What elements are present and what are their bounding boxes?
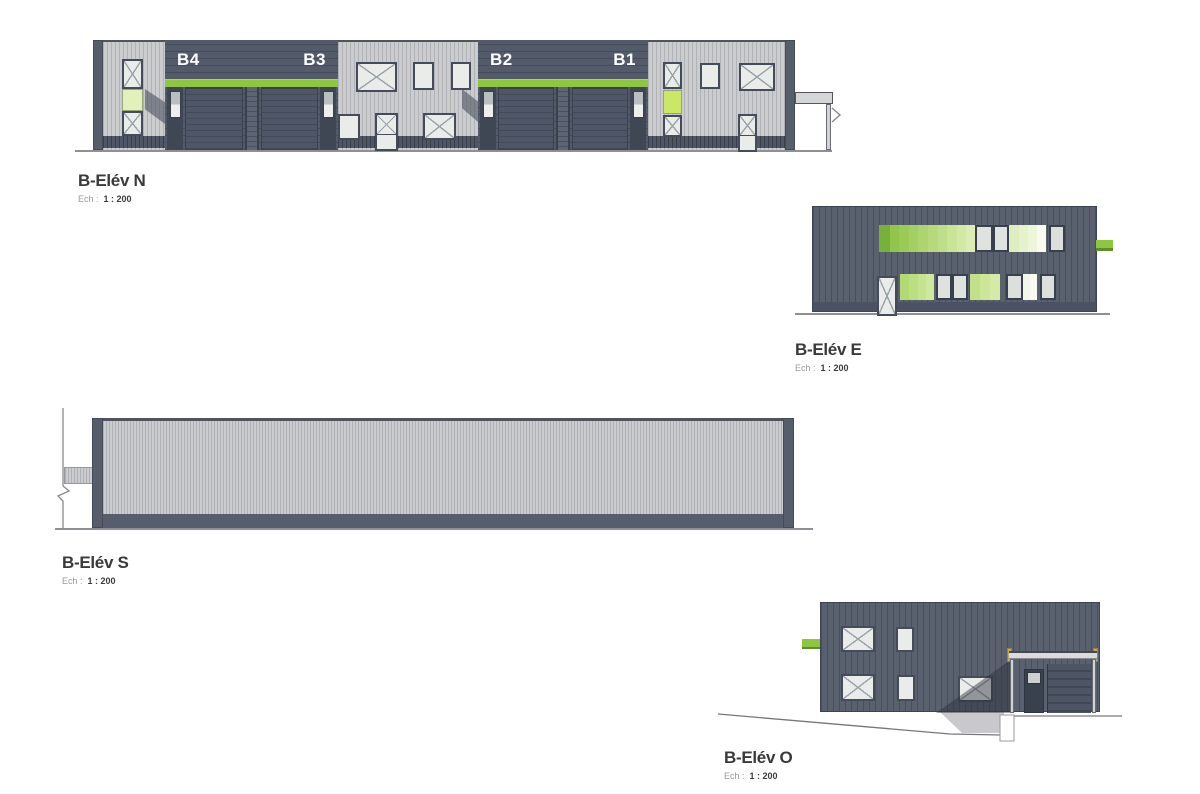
west-scale: Ech :1 : 200 (724, 771, 792, 781)
north-bay-b2-b1: B2 B1 (478, 40, 648, 150)
window-pane (909, 274, 918, 300)
west-title: B-Elév O (724, 748, 792, 768)
east-lower-window-band (900, 274, 1063, 300)
north-bay-b4-b3: B4 B3 (165, 40, 338, 150)
bay-label-b1: B1 (613, 50, 636, 70)
north-base-strip (103, 136, 165, 148)
west-garage-panel (1047, 664, 1091, 713)
south-side-tab (64, 467, 95, 484)
porch-post (1010, 659, 1014, 713)
north-title: B-Elév N (78, 171, 146, 191)
drawing-sheet: B4 B3 B2 (0, 0, 1200, 794)
north-wall-section-left (103, 40, 165, 150)
west-green-tab (802, 639, 820, 649)
window-icon (663, 115, 682, 137)
window-icon (700, 63, 720, 89)
window-icon (896, 627, 914, 652)
break-mark-icon (831, 106, 843, 124)
door-window (1027, 672, 1041, 684)
ramp-shape (940, 712, 1004, 733)
garage-door-b4 (185, 87, 243, 150)
south-ground-line (55, 528, 813, 530)
north-caption: B-Elév N Ech :1 : 200 (78, 171, 146, 204)
bay-label-b3: B3 (303, 50, 326, 70)
overhang-shadow (462, 89, 478, 122)
garage-door-b2 (498, 87, 554, 150)
window-pane (1019, 225, 1029, 252)
window-pane (1006, 274, 1023, 300)
window-pane (890, 225, 900, 252)
green-panel (122, 89, 143, 111)
east-upper-window-band (879, 225, 1065, 252)
overhang-shadow (145, 89, 165, 124)
window-pane (900, 274, 909, 300)
south-right-pillar (783, 418, 794, 528)
north-ground-line (75, 150, 832, 152)
window-icon (122, 59, 143, 89)
green-panel (663, 90, 682, 114)
window-pane (966, 225, 975, 252)
window-icon (356, 62, 397, 92)
window-icon (423, 113, 456, 140)
bay-label-b2: B2 (490, 50, 513, 70)
north-wall-section-middle (338, 40, 478, 150)
window-icon (338, 114, 360, 140)
window-icon (739, 63, 775, 91)
window-pane (918, 225, 928, 252)
east-green-tab (1096, 240, 1113, 251)
east-base-strip (813, 302, 1096, 311)
east-scale: Ech :1 : 200 (795, 363, 862, 373)
west-caption: B-Elév O Ech :1 : 200 (724, 748, 792, 781)
window-pane (926, 274, 934, 300)
window-pane (947, 225, 957, 252)
south-title: B-Elév S (62, 553, 129, 573)
window-pane (980, 274, 990, 300)
bay-center-mullion (556, 87, 570, 150)
porch-post (1092, 659, 1096, 713)
window-pane (1037, 225, 1046, 252)
north-elevation-drawing: B4 B3 B2 (93, 40, 795, 150)
east-caption: B-Elév E Ech :1 : 200 (795, 340, 862, 373)
window-pane (970, 274, 980, 300)
window-pane (938, 225, 948, 252)
north-left-pillar (93, 40, 103, 150)
green-accent-stripe (478, 79, 648, 87)
south-left-pillar (92, 418, 103, 528)
window-icon (897, 675, 915, 701)
window-pane (957, 225, 967, 252)
window-icon (841, 626, 875, 652)
garage-door-b3 (261, 87, 319, 150)
concrete-pad (1000, 715, 1014, 741)
west-entrance-door (1024, 669, 1044, 713)
window-icon (413, 62, 434, 90)
window-pane (1030, 274, 1037, 300)
south-wall (103, 421, 783, 528)
window-pane (952, 274, 968, 300)
west-elevation-drawing (820, 602, 1100, 712)
bay-side-panel (480, 87, 496, 150)
entrance-door (375, 113, 398, 151)
south-elevation-drawing (92, 418, 794, 528)
east-entrance-door (877, 276, 897, 316)
window-pane (993, 225, 1010, 252)
bay-side-panel (630, 87, 646, 150)
porch-beam (1009, 651, 1097, 659)
bay-center-mullion (245, 87, 259, 150)
window-pane (975, 225, 992, 252)
south-base-strip (103, 514, 783, 528)
east-title: B-Elév E (795, 340, 862, 360)
window-pane (936, 274, 952, 300)
porch-shadow (936, 658, 1013, 713)
north-canopy (795, 92, 833, 104)
east-elevation-drawing (812, 206, 1097, 312)
south-caption: B-Elév S Ech :1 : 200 (62, 553, 129, 586)
bay-side-panel (320, 87, 336, 150)
window-icon (122, 111, 143, 136)
window-pane (928, 225, 938, 252)
north-scale: Ech :1 : 200 (78, 194, 146, 204)
green-accent-stripe (165, 79, 338, 87)
bay-side-panel (167, 87, 183, 150)
side-panel-window (170, 91, 181, 118)
side-panel-window (483, 91, 494, 118)
north-right-pillar (785, 40, 795, 150)
side-panel-window (323, 91, 334, 118)
north-base-strip (648, 136, 785, 148)
garage-door-b1 (572, 87, 628, 150)
window-pane (990, 274, 1000, 300)
window-pane (918, 274, 926, 300)
window-icon (451, 62, 471, 90)
window-pane (1049, 225, 1065, 252)
east-ground-line (795, 313, 1110, 315)
window-pane (899, 225, 909, 252)
north-wall-section-right (648, 40, 785, 150)
window-pane (1009, 225, 1019, 252)
window-pane (1040, 274, 1056, 300)
bay-label-b4: B4 (177, 50, 200, 70)
entrance-door (738, 114, 757, 152)
window-icon (841, 674, 875, 701)
south-scale: Ech :1 : 200 (62, 576, 129, 586)
window-icon (663, 62, 682, 89)
window-pane (909, 225, 919, 252)
window-pane (1028, 225, 1037, 252)
window-pane (1023, 274, 1030, 300)
window-pane (879, 225, 890, 252)
side-panel-window (633, 91, 644, 118)
